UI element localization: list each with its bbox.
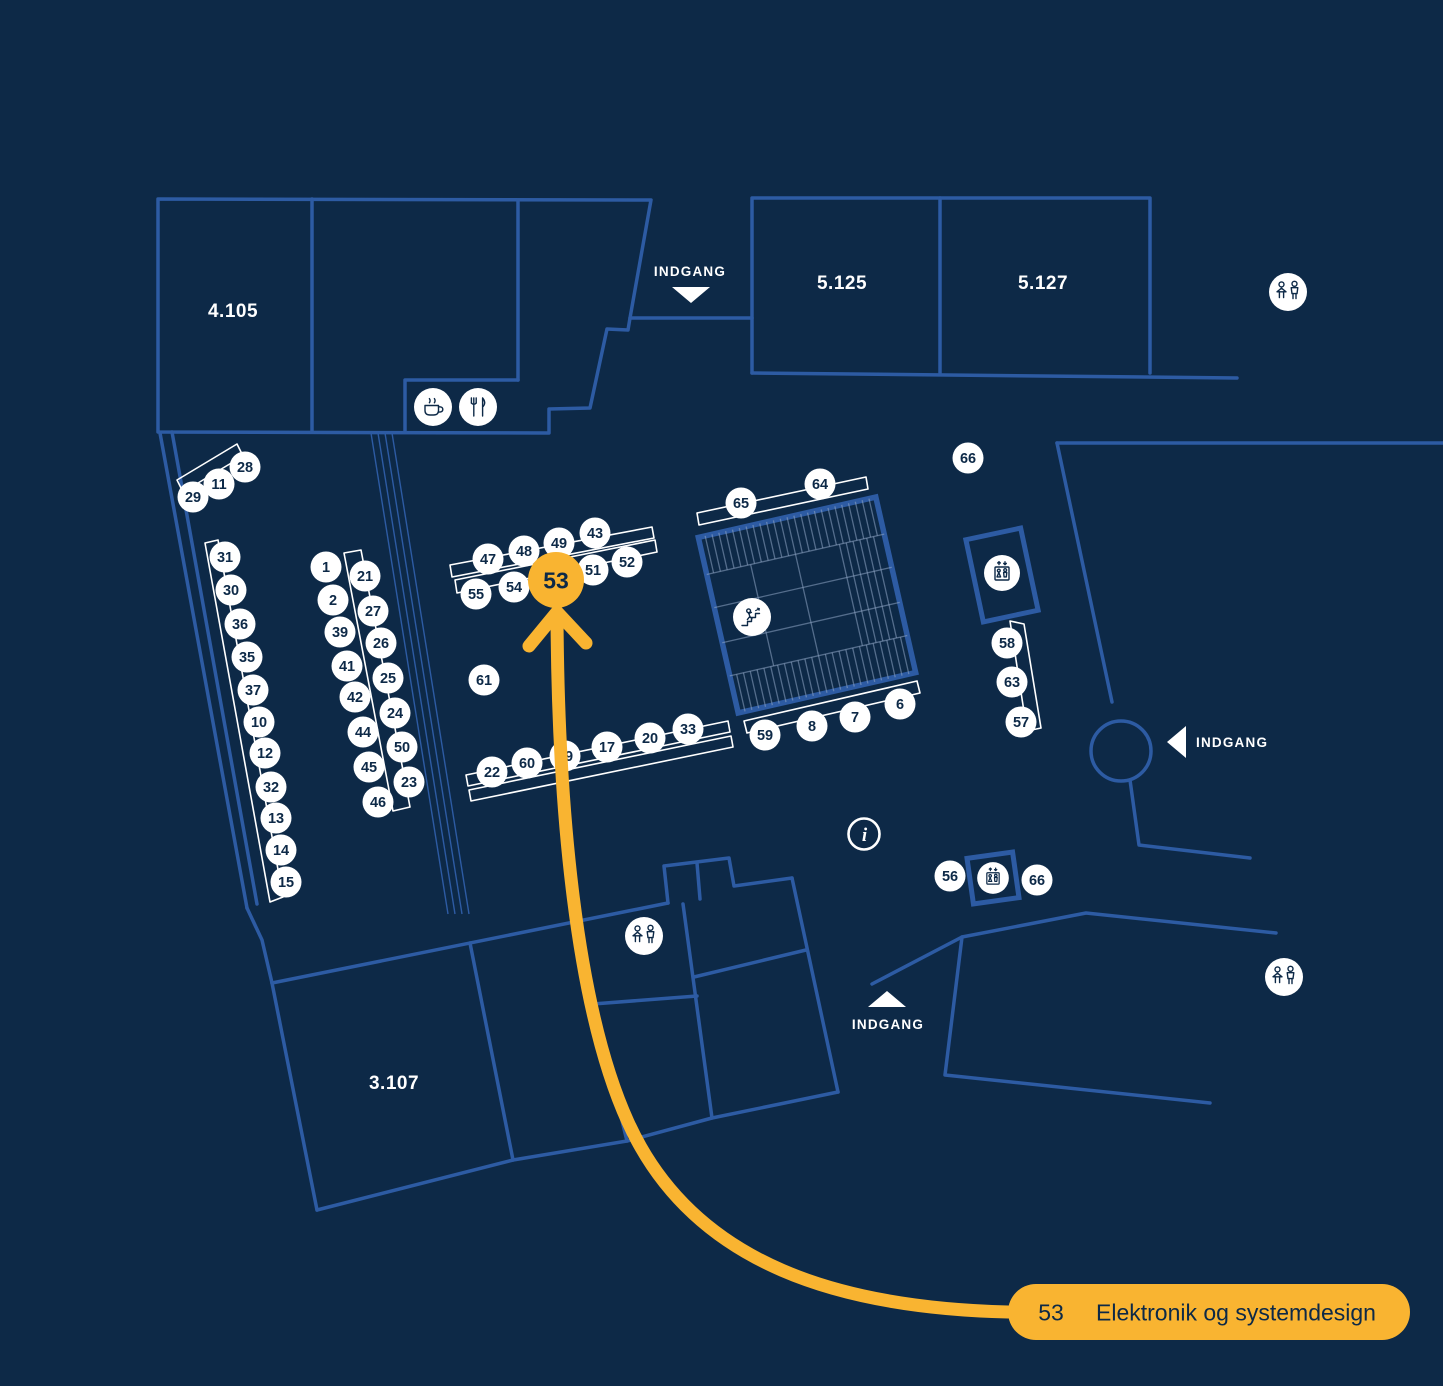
stand-number: 39 [332, 625, 348, 641]
stand-number: 46 [370, 795, 386, 811]
entrance-label: INDGANG [1196, 735, 1268, 750]
stand-number: 22 [484, 765, 500, 781]
room-label-5.127: 5.127 [1018, 273, 1068, 294]
room-label-5.125: 5.125 [817, 273, 867, 294]
stand-number: 13 [268, 811, 284, 827]
stand-marker-7[interactable]: 7 [840, 702, 871, 733]
stand-marker-37[interactable]: 37 [238, 675, 269, 706]
stand-number: 50 [394, 740, 410, 756]
stand-number: 21 [357, 569, 373, 585]
stand-number: 33 [680, 722, 696, 738]
stand-number: 12 [257, 746, 273, 762]
wc-icon [1269, 273, 1307, 311]
stand-marker-1[interactable]: 1 [311, 552, 342, 583]
stand-number: 8 [808, 719, 816, 735]
stand-marker-35[interactable]: 35 [232, 642, 263, 673]
stand-number: 10 [251, 715, 267, 731]
stand-marker-54[interactable]: 54 [499, 572, 530, 603]
stand-number: 66 [1029, 873, 1045, 889]
stand-number: 66 [960, 451, 976, 467]
stand-number: 49 [551, 536, 567, 552]
stand-marker-46[interactable]: 46 [363, 787, 394, 818]
stand-marker-66[interactable]: 66 [1022, 865, 1053, 896]
stand-number: 64 [812, 477, 828, 493]
stand-number: 14 [273, 843, 289, 859]
stand-marker-60[interactable]: 60 [512, 748, 543, 779]
map-background [0, 0, 1443, 1386]
stand-marker-42[interactable]: 42 [340, 682, 371, 713]
entrance-label: INDGANG [852, 1017, 924, 1032]
lift-icon [977, 862, 1009, 894]
lift-icon [984, 555, 1020, 591]
stand-number: 35 [239, 650, 255, 666]
stand-marker-32[interactable]: 32 [256, 772, 287, 803]
stand-marker-8[interactable]: 8 [797, 711, 828, 742]
stand-marker-28[interactable]: 28 [230, 452, 261, 483]
stand-number: 57 [1013, 715, 1029, 731]
stand-marker-52[interactable]: 52 [612, 547, 643, 578]
stand-marker-47[interactable]: 47 [473, 544, 504, 575]
stand-number: 42 [347, 690, 363, 706]
stand-number: 63 [1004, 675, 1020, 691]
stand-marker-20[interactable]: 20 [635, 723, 666, 754]
stairs-icon [733, 598, 771, 636]
highlighted-stand-badge[interactable]: 53 [528, 552, 584, 608]
stand-number: 6 [896, 697, 904, 713]
legend-pill[interactable]: 53 Elektronik og systemdesign [1008, 1284, 1410, 1340]
stand-marker-15[interactable]: 15 [271, 867, 302, 898]
stand-marker-26[interactable]: 26 [366, 628, 397, 659]
highlighted-stand-number: 53 [543, 567, 569, 593]
stand-marker-41[interactable]: 41 [332, 651, 363, 682]
stand-marker-2[interactable]: 2 [318, 585, 349, 616]
stand-number: 2 [329, 593, 337, 609]
stand-number: 7 [851, 710, 859, 726]
stand-marker-12[interactable]: 12 [250, 738, 281, 769]
stand-marker-10[interactable]: 10 [244, 707, 275, 738]
stand-marker-36[interactable]: 36 [225, 609, 256, 640]
stand-number: 23 [401, 775, 417, 791]
stand-marker-29[interactable]: 29 [178, 482, 209, 513]
stand-marker-63[interactable]: 63 [997, 667, 1028, 698]
wc-icon [1265, 958, 1303, 996]
stand-number: 26 [373, 636, 389, 652]
stand-number: 11 [211, 477, 226, 493]
stand-number: 29 [185, 490, 201, 506]
stand-marker-25[interactable]: 25 [373, 663, 404, 694]
stand-marker-17[interactable]: 17 [592, 732, 623, 763]
wc-icon [625, 917, 663, 955]
floorplan-map: i [0, 0, 1443, 1386]
stand-marker-23[interactable]: 23 [394, 767, 425, 798]
stand-number: 54 [506, 580, 522, 596]
stand-number: 65 [733, 496, 749, 512]
stand-marker-61[interactable]: 61 [469, 665, 500, 696]
stand-marker-44[interactable]: 44 [348, 717, 379, 748]
stand-marker-22[interactable]: 22 [477, 757, 508, 788]
stand-number: 56 [942, 869, 958, 885]
coffee-icon [414, 388, 452, 426]
stand-number: 25 [380, 671, 396, 687]
stand-number: 27 [365, 604, 381, 620]
stand-number: 24 [387, 706, 403, 722]
stand-marker-43[interactable]: 43 [580, 518, 611, 549]
stand-number: 17 [599, 740, 615, 756]
stand-number: 44 [355, 725, 371, 741]
stand-number: 60 [519, 756, 535, 772]
stand-number: 36 [232, 617, 248, 633]
stand-number: 45 [361, 760, 377, 776]
stand-number: 28 [237, 460, 253, 476]
stand-number: 59 [757, 728, 773, 744]
stand-marker-56[interactable]: 56 [935, 861, 966, 892]
stand-marker-13[interactable]: 13 [261, 803, 292, 834]
stand-marker-39[interactable]: 39 [325, 617, 356, 648]
stand-marker-66[interactable]: 66 [953, 443, 984, 474]
stand-number: 52 [619, 555, 635, 571]
stand-marker-64[interactable]: 64 [805, 469, 836, 500]
legend-number: 53 [1038, 1299, 1064, 1325]
stand-number: 48 [516, 544, 532, 560]
stand-number: 15 [278, 875, 294, 891]
stand-number: 32 [263, 780, 279, 796]
stand-number: 55 [468, 587, 484, 603]
stand-marker-58[interactable]: 58 [992, 628, 1023, 659]
stand-marker-45[interactable]: 45 [354, 752, 385, 783]
room-label-3.107: 3.107 [369, 1073, 419, 1094]
stand-marker-50[interactable]: 50 [387, 732, 418, 763]
stand-number: 58 [999, 636, 1015, 652]
stand-marker-55[interactable]: 55 [461, 579, 492, 610]
stand-number: 37 [245, 683, 261, 699]
stand-marker-30[interactable]: 30 [216, 575, 247, 606]
stand-marker-21[interactable]: 21 [350, 561, 381, 592]
stand-marker-27[interactable]: 27 [358, 596, 389, 627]
stand-marker-14[interactable]: 14 [266, 835, 297, 866]
stand-marker-57[interactable]: 57 [1006, 707, 1037, 738]
stand-number: 61 [476, 673, 492, 689]
stand-number: 20 [642, 731, 658, 747]
stand-marker-33[interactable]: 33 [673, 714, 704, 745]
entrance-label: INDGANG [654, 264, 726, 279]
stand-number: 30 [223, 583, 239, 599]
room-label-4.105: 4.105 [208, 301, 258, 322]
legend-name: Elektronik og systemdesign [1096, 1299, 1376, 1325]
stand-marker-24[interactable]: 24 [380, 698, 411, 729]
stand-number: 43 [587, 526, 603, 542]
stand-number: 31 [217, 550, 233, 566]
stand-number: 51 [585, 563, 601, 579]
stand-number: 41 [339, 659, 355, 675]
stand-number: 47 [480, 552, 496, 568]
food-icon [459, 388, 497, 426]
stand-marker-65[interactable]: 65 [726, 488, 757, 519]
stand-marker-31[interactable]: 31 [210, 542, 241, 573]
stand-number: 1 [322, 560, 330, 576]
stand-marker-59[interactable]: 59 [750, 720, 781, 751]
stand-marker-6[interactable]: 6 [885, 689, 916, 720]
